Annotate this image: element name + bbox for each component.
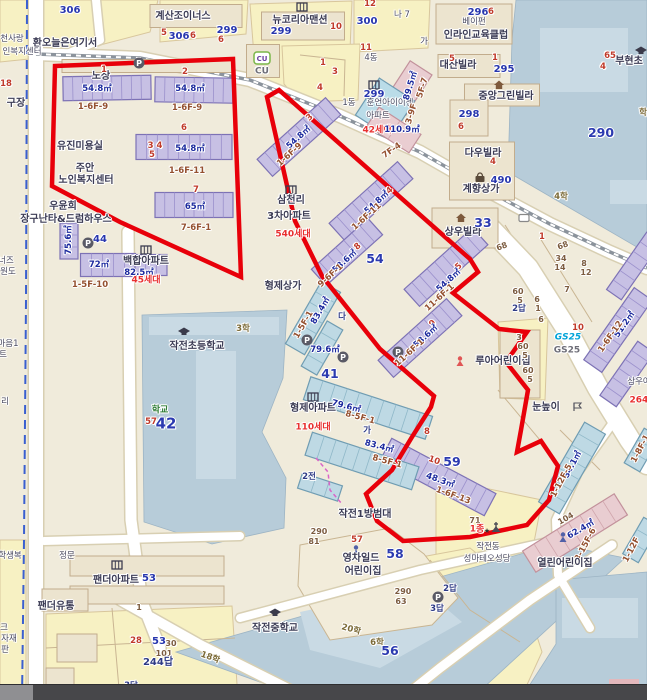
map-label: 54.8㎡ — [175, 85, 204, 94]
map-label: 인라인교육클럽 — [444, 31, 508, 41]
map-label: 정문 — [59, 552, 75, 561]
map-shape — [574, 403, 581, 408]
map-label: 298 — [459, 110, 480, 120]
map-label: 72㎡ — [89, 261, 109, 270]
map-label: 5 — [149, 151, 155, 160]
map-label: 천사랑 — [0, 35, 23, 44]
map-label: 자재 — [1, 635, 17, 644]
map-label: 65 — [604, 52, 616, 61]
map-label: 63 — [395, 598, 406, 606]
map-label: 3 — [516, 334, 522, 342]
map-label: 판 — [1, 646, 9, 655]
map-label: 244답 — [143, 658, 173, 668]
map-label: CU — [255, 68, 269, 77]
map-label: 5 — [527, 376, 533, 384]
map-label: 11 — [360, 44, 372, 53]
kindergarten-icon-head — [561, 532, 565, 536]
map-label: 30 — [165, 640, 176, 648]
map-label: 7 — [193, 186, 199, 195]
map-label: 작전1방범대 — [339, 510, 392, 520]
map-label: 3학 — [236, 325, 250, 334]
map-label: 구장 — [7, 99, 25, 109]
map-label: 53 — [142, 574, 156, 584]
parking-icon: P — [83, 238, 94, 249]
map-label: 12 — [364, 0, 376, 8]
parking-icon-letter: P — [340, 353, 346, 362]
apartment-building — [607, 232, 647, 300]
station-icon-box — [519, 215, 529, 222]
map-label: 1종 — [470, 526, 485, 535]
map-label: 1 — [492, 54, 498, 63]
map-label: 7-6F-1 — [181, 224, 211, 233]
map-label: 110세대 — [295, 424, 330, 433]
school-building — [196, 351, 236, 479]
map-label: 2답 — [443, 585, 457, 594]
map-label: 부현초 — [615, 57, 643, 67]
map-label: 5 — [161, 29, 167, 38]
structure — [57, 634, 97, 662]
map-shape — [496, 85, 502, 89]
map-label: 형제상가 — [265, 282, 302, 292]
school-building — [149, 317, 279, 335]
map-label: 1-6F-9 — [172, 104, 202, 113]
bottom-bar-corner — [0, 685, 33, 700]
map-label: 58 — [386, 548, 403, 561]
map-label: 나 7 — [394, 11, 410, 20]
kindergarten-icon-head — [458, 356, 462, 360]
map-label: 트 — [0, 351, 7, 360]
map-label: 가 — [363, 427, 371, 436]
map-label: 81 — [308, 538, 319, 546]
map-label: 6 — [488, 8, 494, 17]
map-label: 18 — [0, 80, 12, 89]
parking-icon: P — [433, 592, 444, 603]
map-label: 57 — [351, 536, 363, 545]
station-icon — [519, 215, 529, 222]
map-label: 마음1 — [0, 340, 19, 349]
star-icon: ★ — [484, 527, 490, 535]
map-label: 형제아파트 — [290, 404, 336, 414]
kindergarten-icon — [457, 356, 464, 366]
map-label: 유진미용실 — [57, 142, 103, 152]
map-label: 79.6㎡ — [310, 346, 339, 355]
map-label: 열린어린이집 — [537, 559, 592, 569]
building-icon — [141, 246, 151, 254]
map-label: 33 — [474, 217, 491, 230]
star-icon-glyph: ★ — [484, 527, 490, 535]
parking-icon-letter: P — [435, 593, 441, 602]
map-label: 6 — [181, 124, 187, 133]
flag-icon — [574, 403, 581, 411]
map-label: 1동 — [342, 99, 355, 108]
map-label: 1 — [320, 59, 326, 68]
map-label: 작전초등학교 — [169, 342, 224, 352]
map-label: 6 — [190, 32, 196, 41]
map-label: 295 — [494, 65, 515, 75]
map-label: 42 — [156, 417, 177, 432]
map-label: 34 — [555, 255, 566, 263]
map-label: 어린이집 — [345, 567, 382, 577]
map-label: 계산조이너스 — [155, 12, 210, 22]
map-label: 베이펀 — [462, 18, 485, 27]
cu-icon-text: CU — [257, 55, 268, 63]
window-bottom-bar — [0, 684, 647, 700]
map-label: 크 — [0, 624, 8, 633]
map-label: 팬더아파트 — [93, 576, 139, 586]
kindergarten-icon-head — [354, 545, 358, 549]
map-label: 중앙그린빌라 — [478, 92, 533, 102]
map-label: 영차일드 — [343, 554, 380, 564]
map-label: 우윤희 — [49, 202, 77, 212]
house-icon-roof — [494, 81, 504, 86]
map-label: 4학 — [554, 193, 568, 202]
map-label: 4동 — [364, 54, 377, 63]
map-label: 2답 — [512, 305, 526, 314]
map-label: 너즈 — [0, 257, 14, 266]
map-label: 6 — [534, 296, 540, 304]
map-label: 6 — [538, 316, 544, 324]
map-label: 삼우아 — [627, 378, 647, 387]
map-label: 299 — [271, 27, 292, 37]
shop-icon-bag — [476, 176, 485, 182]
map-label: 1-6F-11 — [169, 167, 205, 176]
map-label: 삼천리 — [277, 196, 305, 206]
map-label: 3 — [332, 68, 338, 77]
map-label: 7 — [564, 286, 570, 294]
map-label: 성마테오성당 — [464, 555, 511, 564]
parking-icon-letter: P — [304, 336, 310, 345]
map-label: 눈높이 — [532, 403, 560, 413]
map-shape — [458, 218, 464, 222]
map-label: 300 — [357, 17, 378, 27]
map-label: 306 — [60, 6, 81, 16]
map-label: 490 — [491, 176, 512, 186]
map-label: 28 — [130, 637, 142, 646]
map-label: GS25 — [555, 334, 581, 343]
map-label: 4 — [600, 63, 606, 72]
map-label: 5 — [522, 352, 528, 360]
map-label: 장구난타&드럼하우스 — [20, 215, 112, 225]
map-label: 290 — [395, 588, 412, 596]
map-label: 1 — [101, 66, 107, 75]
map-label: 8 — [581, 260, 587, 268]
parking-icon-letter: P — [85, 239, 91, 248]
map-label: 45세대 — [131, 277, 160, 286]
map-label: 3답 — [430, 605, 444, 614]
map-label: 10 — [330, 23, 342, 32]
map-label: 1-6F-9 — [78, 103, 108, 112]
map-label: 5 — [449, 55, 455, 64]
school-building — [610, 180, 647, 204]
map-shape — [182, 332, 187, 335]
map-label: 54 — [366, 253, 383, 266]
map-label: 학 — [639, 109, 647, 118]
map-label: 306 — [169, 32, 190, 42]
map-label: 8 — [424, 428, 430, 437]
map-label: 1 — [535, 305, 541, 313]
map-label: 인복지센터 — [2, 48, 41, 57]
map-label: 환오늘은여기서 — [33, 39, 97, 49]
map-label: GS25 — [554, 347, 580, 356]
cu-icon: CU — [254, 52, 270, 64]
map-label: 6 — [458, 123, 464, 132]
map-label: 학생복 — [0, 552, 22, 561]
map-label: 60 — [512, 288, 523, 296]
map-label: 12 — [580, 269, 591, 277]
map-shape — [273, 613, 278, 616]
map-label: 1-5F-10 — [72, 281, 108, 290]
map-label: 다 — [338, 313, 346, 322]
map-label: 60 — [522, 367, 533, 375]
map-label: 리 — [1, 398, 9, 407]
map-label: 4 — [490, 158, 496, 167]
map-label: 56 — [381, 645, 398, 658]
map-label: 작전동 — [476, 543, 499, 552]
map-label: 대산빌라 — [440, 61, 477, 71]
map-label: 노인복지센터 — [58, 176, 113, 186]
map-label: 59 — [443, 456, 460, 469]
map-label: 백합아파트 — [123, 257, 169, 267]
map-label: 10 — [572, 324, 584, 333]
map-label: 290 — [311, 528, 328, 536]
map-label: 6 — [218, 36, 224, 45]
building-icon-frame — [141, 246, 151, 254]
map-label: 54.8㎡ — [82, 85, 111, 94]
map-label: 4 — [317, 84, 323, 93]
map-label: 60 — [517, 343, 528, 351]
parking-icon: P — [134, 58, 145, 69]
map-label: 뉴코리아맨션 — [272, 16, 327, 26]
map-label: 2 — [182, 68, 188, 77]
map-label: 53 — [152, 637, 166, 647]
map-label: 290 — [588, 127, 614, 140]
structure — [70, 586, 224, 604]
map-label: 264세 — [629, 397, 647, 406]
map-label: 75.6㎡ — [65, 225, 74, 254]
map-label: 54.8㎡ — [175, 145, 204, 154]
map-label: 작전중학교 — [252, 624, 298, 634]
map-label: 44 — [93, 235, 107, 245]
map-label: 1 — [539, 233, 545, 242]
map-label: 아파트 — [366, 112, 389, 121]
map-label: 41 — [321, 368, 338, 381]
map-label: 3차아파트 — [267, 212, 311, 222]
map-label: 14 — [554, 264, 565, 272]
road — [44, 536, 240, 541]
map-label: 110.9㎡ — [384, 126, 419, 135]
map-label: 팬더유통 — [38, 602, 75, 612]
map-label: 2전 — [302, 473, 316, 482]
map-label: 계향상가 — [463, 185, 500, 195]
map-label: 가 — [420, 38, 428, 47]
map-label: 주안 — [76, 164, 94, 174]
map-label: 원도 — [0, 268, 16, 277]
map-shape — [457, 361, 464, 367]
map-canvas[interactable]: PPPPPPCU★ 306계산조이너스53066환오늘은여기서천사랑인복지센터1… — [0, 0, 647, 700]
map-label: 65㎡ — [185, 203, 205, 212]
map-shape — [639, 51, 644, 54]
parking-icon-letter: P — [136, 59, 142, 68]
map-label: 540세대 — [275, 231, 310, 240]
map-label: 1 — [136, 604, 142, 612]
